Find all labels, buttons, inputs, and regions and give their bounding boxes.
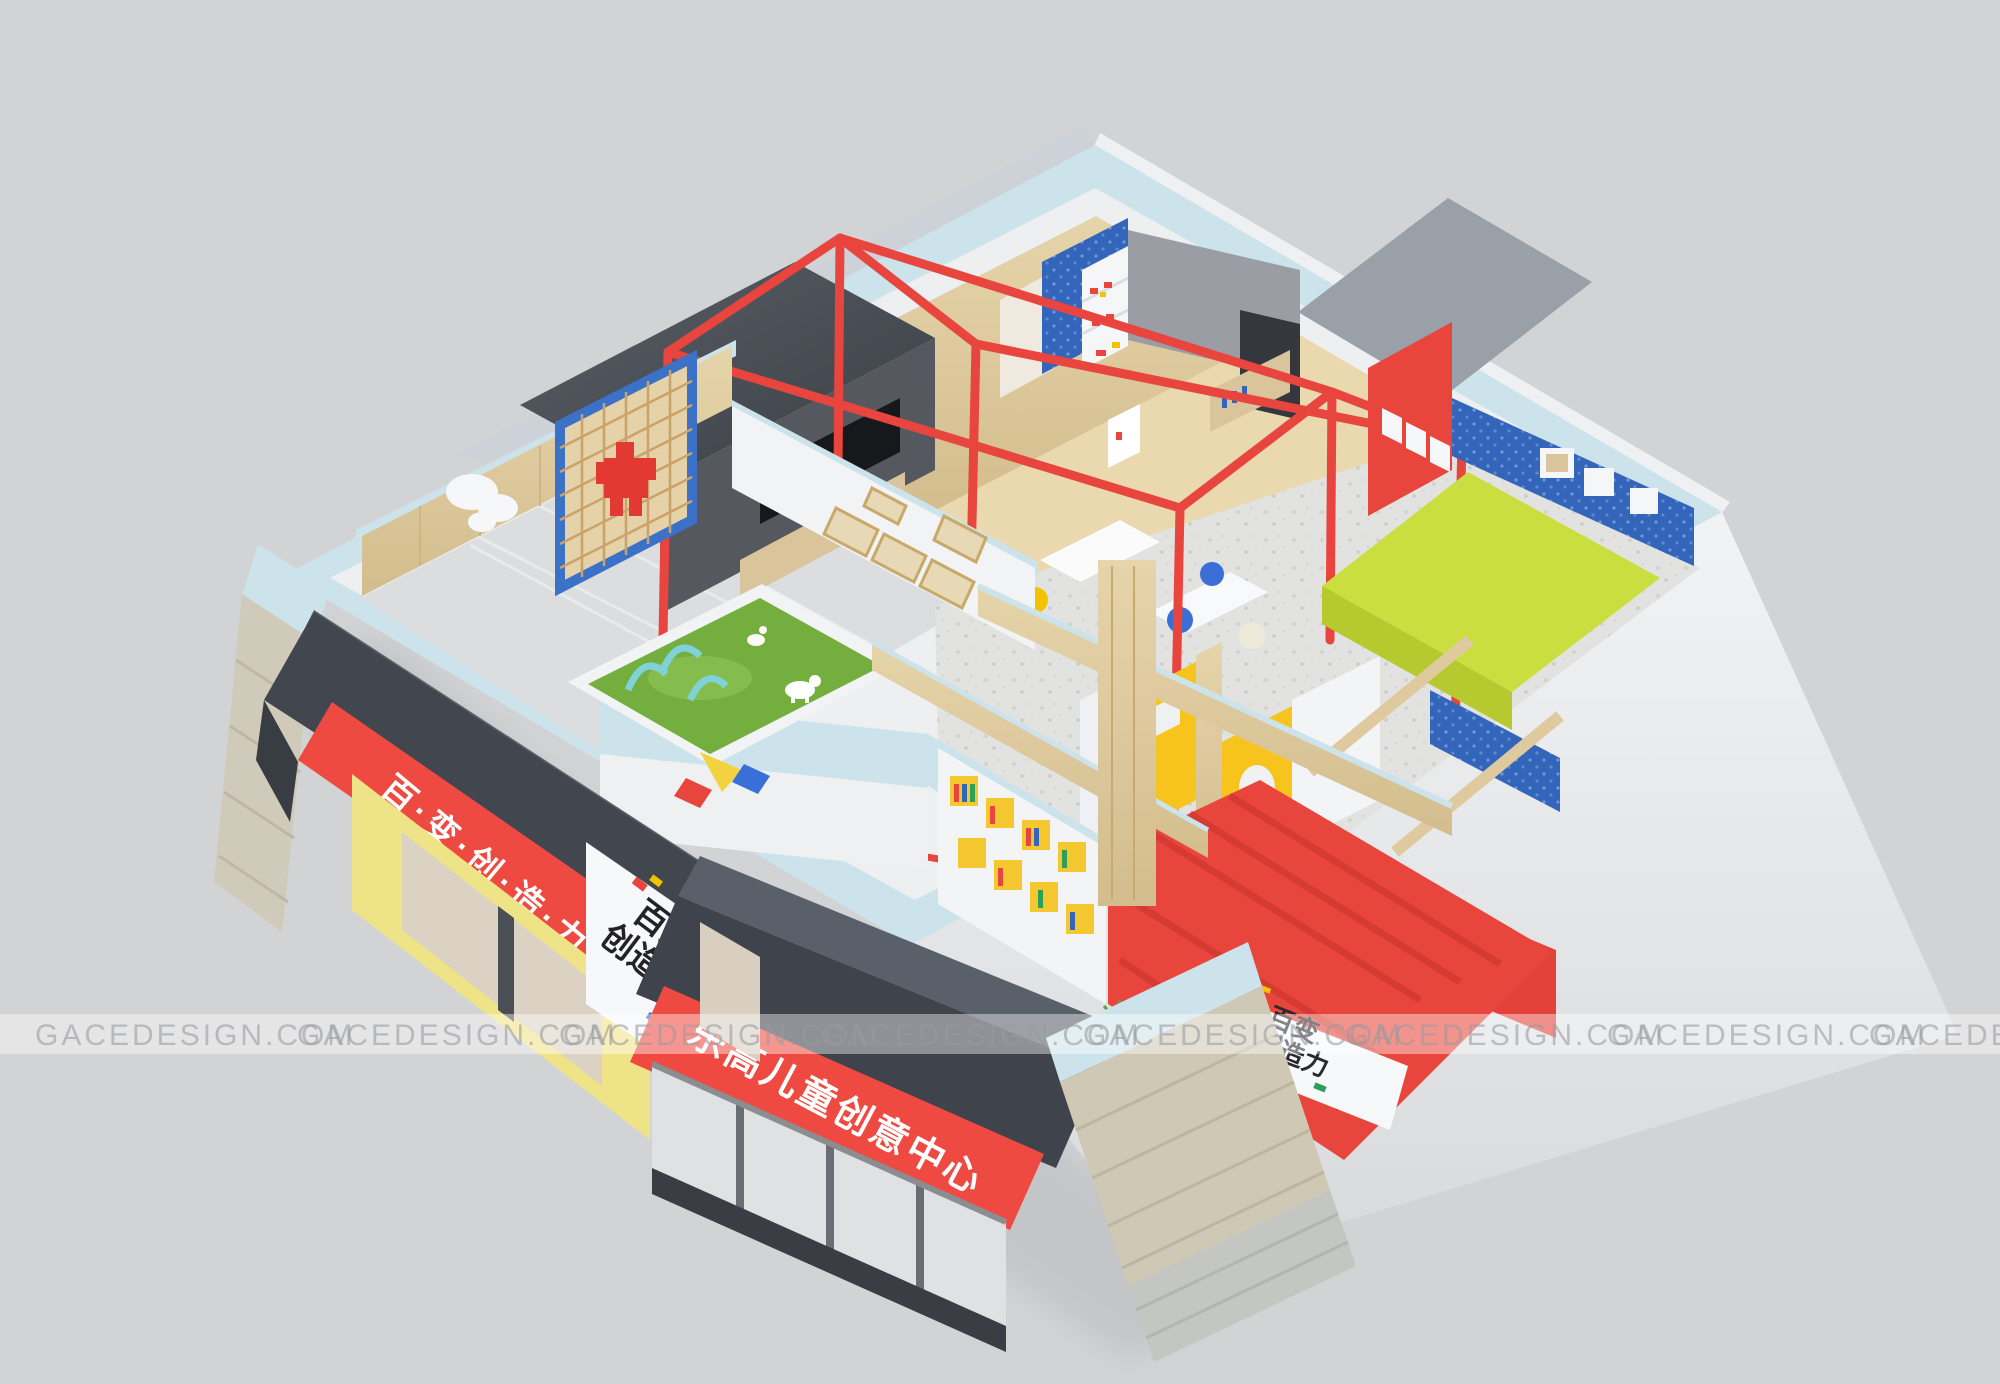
wood-pillar	[1098, 560, 1156, 906]
chair-blue	[1200, 562, 1224, 586]
wall-art-detail	[1116, 432, 1122, 440]
chair-white	[1239, 623, 1265, 649]
watermark-band: GACEDESIGN.COM GACEDESIGN.COM GACEDESIGN…	[0, 1014, 2000, 1054]
watermark-text: GACEDESIGN.COM	[1869, 1019, 2000, 1052]
window-mullion	[498, 906, 514, 1022]
render-canvas: 百变 创造力	[0, 0, 2000, 1384]
box-shelf-inner	[1546, 454, 1568, 472]
isometric-scene: 百变 创造力	[0, 0, 2000, 1384]
